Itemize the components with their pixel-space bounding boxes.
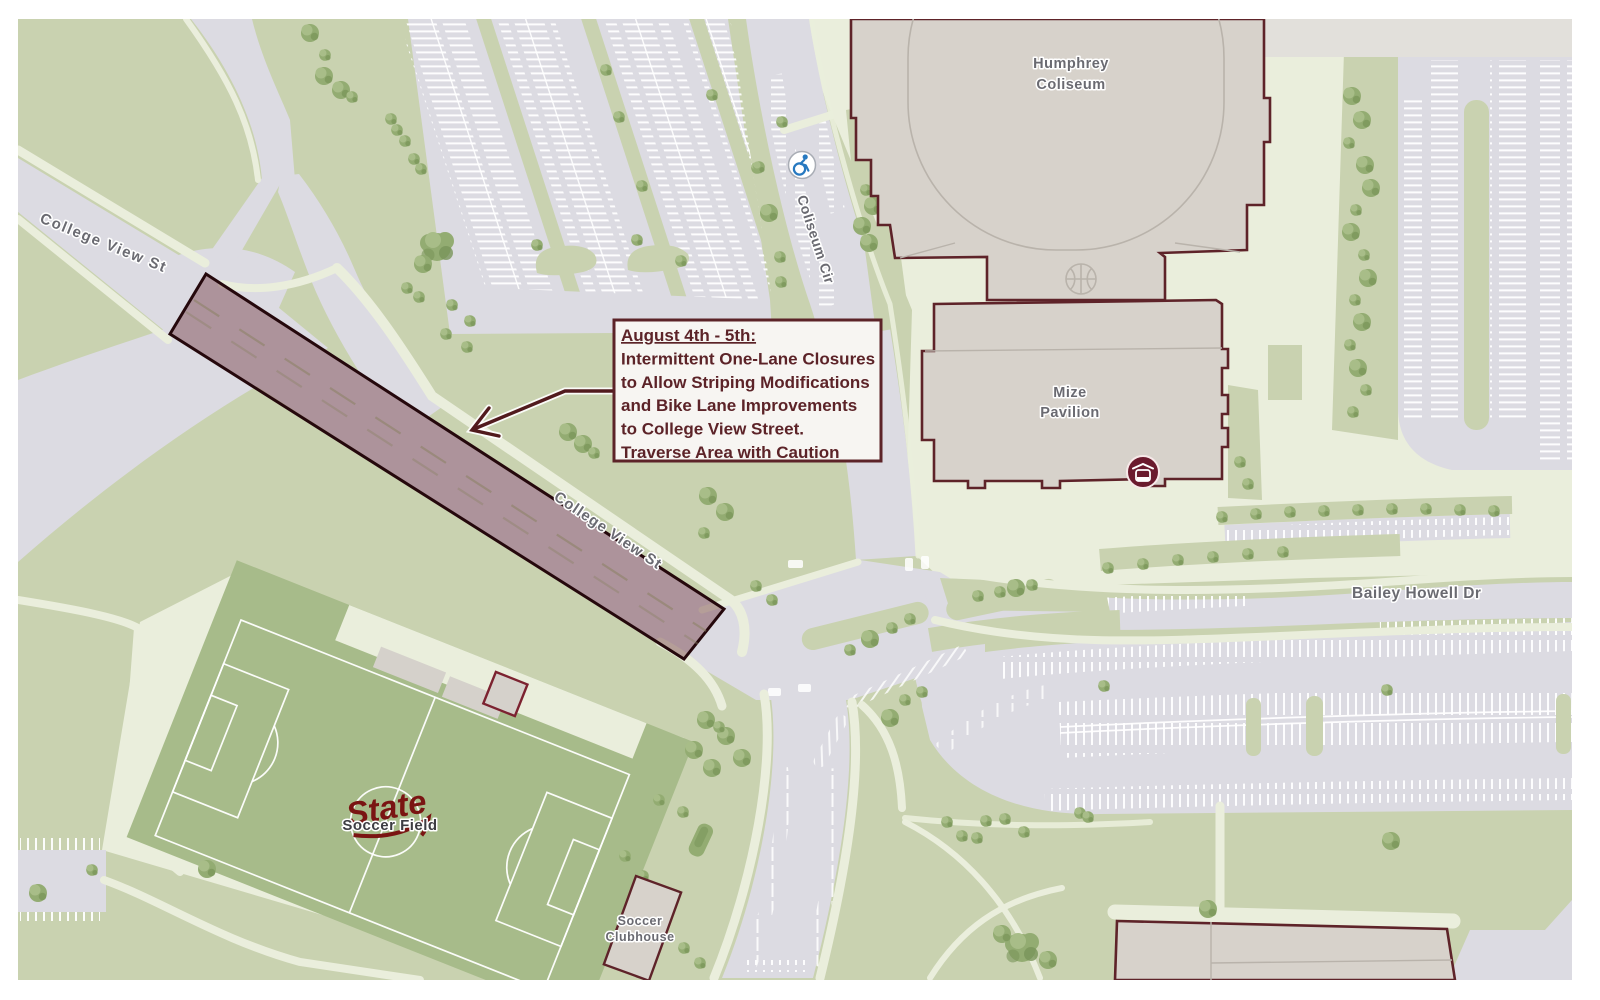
svg-text:Coliseum: Coliseum: [1036, 77, 1105, 93]
svg-text:Intermittent One-Lane Closures: Intermittent One-Lane Closures: [621, 349, 875, 368]
svg-text:Pavilion: Pavilion: [1040, 405, 1100, 421]
svg-text:Mize: Mize: [1053, 385, 1086, 401]
svg-text:Bailey Howell Dr: Bailey Howell Dr: [1352, 585, 1481, 602]
svg-text:Soccer: Soccer: [618, 914, 663, 928]
svg-text:Traverse Area with Caution: Traverse Area with Caution: [621, 443, 840, 462]
svg-text:Humphrey: Humphrey: [1033, 56, 1109, 72]
svg-text:Soccer Field: Soccer Field: [342, 817, 437, 834]
svg-text:August 4th - 5th:: August 4th - 5th:: [621, 326, 756, 345]
svg-text:to College View Street.: to College View Street.: [621, 420, 804, 439]
svg-text:Clubhouse: Clubhouse: [605, 930, 674, 944]
svg-text:to Allow Striping Modification: to Allow Striping Modifications: [621, 373, 870, 392]
svg-text:and Bike Lane Improvements: and Bike Lane Improvements: [621, 396, 857, 415]
